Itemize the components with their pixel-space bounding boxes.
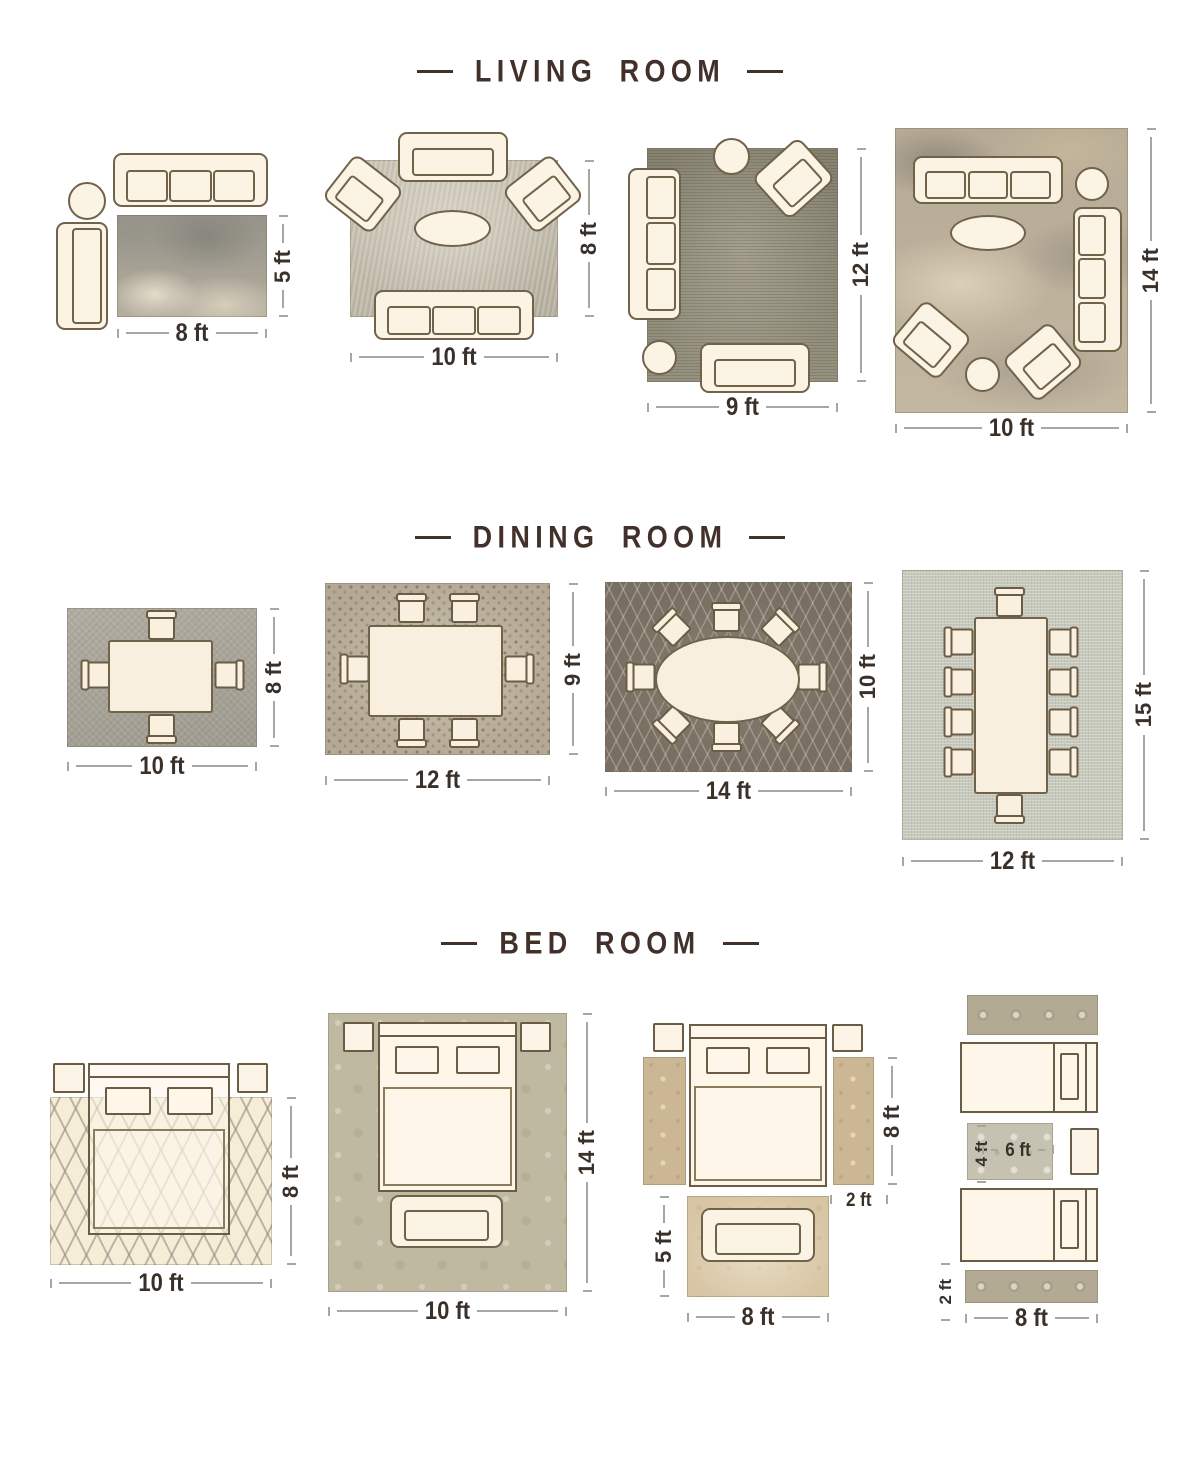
- sofa: [1073, 207, 1122, 352]
- dimension-label: 9 ft: [726, 394, 759, 419]
- twin-bed: [960, 1188, 1098, 1262]
- title-rule: [415, 536, 451, 539]
- side-table: [965, 357, 1000, 392]
- runner-rug: [967, 995, 1098, 1035]
- living-layout-8x5: 5 ft 8 ft: [50, 140, 302, 352]
- runner-rug: [833, 1057, 874, 1185]
- cushion: [432, 306, 476, 335]
- height-dimension: 15 ft: [1133, 570, 1155, 840]
- height-dimension: 14 ft: [1140, 128, 1162, 413]
- pillow: [456, 1046, 501, 1074]
- bed: [378, 1022, 517, 1192]
- side-table: [642, 340, 677, 375]
- sofa: [113, 153, 268, 207]
- dimension-label: 10 ft: [431, 344, 476, 369]
- pillow: [167, 1087, 213, 1116]
- bedroom-layout-twin-beds: 4 ft 6 ft 2 ft 8 ft: [930, 985, 1186, 1337]
- title-rule: [441, 942, 477, 945]
- cushion: [477, 306, 521, 335]
- dining-chair: [948, 629, 974, 656]
- cushion: [646, 176, 676, 219]
- headboard: [90, 1065, 228, 1078]
- dining-chair: [996, 591, 1023, 617]
- dining-chair: [398, 718, 425, 744]
- dining-chair: [798, 664, 824, 691]
- section-title: DINING ROOM: [473, 519, 728, 556]
- dining-chair: [948, 749, 974, 776]
- headboard: [691, 1026, 825, 1039]
- cushion: [169, 170, 211, 202]
- sofa: [628, 168, 681, 320]
- headboard: [1085, 1044, 1096, 1111]
- dining-chair: [451, 718, 478, 744]
- cushion: [1078, 258, 1105, 299]
- dimension-label: 14 ft: [1140, 248, 1162, 293]
- height-dimension: 8 ft: [280, 1097, 302, 1265]
- bench: [390, 1195, 503, 1248]
- dining-chair: [996, 794, 1023, 820]
- height-dimension: 14 ft: [576, 1013, 598, 1292]
- dimension-label: 6 ft: [1005, 1140, 1031, 1160]
- chaise: [56, 222, 108, 330]
- runner-width-dimension: 2 ft: [830, 1191, 878, 1208]
- cushion: [126, 170, 168, 202]
- height-dimension: 8 ft: [578, 160, 600, 317]
- section-title: LIVING ROOM: [475, 53, 725, 90]
- mattress: [694, 1086, 821, 1181]
- dining-chair: [215, 662, 241, 689]
- cushion: [968, 171, 1009, 199]
- cushion: [646, 222, 676, 265]
- dining-table: [655, 636, 800, 723]
- width-dimension: 9 ft: [647, 396, 838, 418]
- dining-layout-10x8: 8 ft 10 ft: [55, 585, 305, 785]
- height-dimension: 10 ft: [857, 582, 879, 772]
- height-dimension: 5 ft: [272, 215, 294, 317]
- dimension-label: 12 ft: [415, 767, 460, 792]
- dining-chair: [1049, 709, 1075, 736]
- height-dimension: 12 ft: [850, 148, 872, 382]
- dimension-label: 12 ft: [850, 242, 872, 287]
- title-rule: [747, 70, 783, 73]
- cushion: [646, 268, 676, 311]
- width-dimension: 10 ft: [350, 346, 558, 368]
- rug-size-guide: LIVING ROOM 5 ft 8 ft: [0, 0, 1200, 1467]
- dining-layout-12x15: 15 ft 12 ft: [895, 562, 1185, 880]
- height-dimension: 9 ft: [562, 583, 584, 755]
- dimension-label: 14 ft: [706, 778, 751, 803]
- dining-chair: [948, 669, 974, 696]
- dining-chair: [948, 709, 974, 736]
- dimension-label: 8 ft: [578, 222, 600, 255]
- runner-height-dimension: 8 ft: [881, 1057, 903, 1185]
- twin-bed: [960, 1042, 1098, 1113]
- pillow: [1060, 1053, 1079, 1100]
- mattress: [383, 1087, 511, 1186]
- cushion: [714, 359, 797, 388]
- height-dimension: 5 ft: [653, 1196, 675, 1297]
- dimension-label: 14 ft: [576, 1130, 598, 1175]
- area-rug: [117, 215, 267, 317]
- nightstand: [343, 1022, 374, 1052]
- dimension-label: 8 ft: [263, 661, 285, 694]
- bed: [689, 1024, 827, 1187]
- dimension-label: 8 ft: [1015, 1305, 1048, 1330]
- dining-table: [974, 617, 1048, 794]
- nightstand: [1070, 1128, 1099, 1175]
- cushion: [715, 1223, 801, 1255]
- sofa: [913, 156, 1063, 204]
- dining-table: [108, 640, 213, 713]
- cushion: [412, 148, 495, 177]
- width-dimension: 10 ft: [895, 417, 1128, 439]
- width-dimension: 8 ft: [117, 322, 267, 344]
- dimension-label: 8 ft: [280, 1165, 302, 1198]
- cushion: [404, 1210, 489, 1241]
- runner-length-dimension: 8 ft: [965, 1307, 1098, 1329]
- bed-divider: [1053, 1044, 1055, 1111]
- dimension-label: 2 ft: [937, 1279, 954, 1305]
- nightstand: [653, 1023, 684, 1052]
- height-dimension: 8 ft: [263, 608, 285, 747]
- title-rule: [417, 70, 453, 73]
- cushion: [333, 173, 386, 224]
- dimension-label: 9 ft: [562, 653, 584, 686]
- bedroom-layout-10x14: 14 ft 10 ft: [328, 1005, 604, 1335]
- pillow: [766, 1047, 810, 1074]
- dining-chair: [1049, 629, 1075, 656]
- pillow: [395, 1046, 440, 1074]
- dining-layout-14x10: 10 ft 14 ft: [595, 572, 883, 800]
- bed: [88, 1063, 230, 1235]
- dining-chair: [148, 714, 175, 740]
- accent-width-dimension: 6 ft: [982, 1141, 1054, 1158]
- nightstand: [237, 1063, 268, 1093]
- cushion: [213, 170, 255, 202]
- cushion: [520, 173, 573, 224]
- cushion: [1078, 215, 1105, 256]
- dining-chair: [630, 664, 656, 691]
- cushion: [72, 228, 102, 324]
- width-dimension: 8 ft: [687, 1306, 829, 1328]
- dining-chair: [1049, 749, 1075, 776]
- dimension-label: 5 ft: [272, 250, 294, 283]
- dimension-label: 8 ft: [176, 320, 209, 345]
- nightstand: [832, 1024, 863, 1052]
- dining-chair: [85, 662, 111, 689]
- loveseat: [701, 1208, 815, 1262]
- headboard: [380, 1024, 515, 1037]
- loveseat: [700, 343, 810, 393]
- pillow: [706, 1047, 750, 1074]
- dimension-label: 10 ft: [138, 1270, 183, 1295]
- pillow: [1060, 1200, 1079, 1249]
- dining-table: [368, 625, 503, 717]
- dimension-label: 12 ft: [990, 848, 1035, 873]
- dimension-label: 10 ft: [139, 753, 184, 778]
- width-dimension: 14 ft: [605, 780, 852, 802]
- sofa: [374, 290, 534, 340]
- dimension-label: 5 ft: [653, 1230, 675, 1263]
- bedroom-layout-10x8: 8 ft 10 ft: [40, 1050, 306, 1300]
- nightstand: [520, 1022, 551, 1052]
- dining-chair: [398, 597, 425, 623]
- dining-chair: [148, 614, 175, 640]
- section-title: BED ROOM: [499, 925, 700, 962]
- width-dimension: 10 ft: [50, 1272, 272, 1294]
- dimension-label: 10 ft: [989, 415, 1034, 440]
- dimension-label: 8 ft: [742, 1304, 775, 1329]
- dining-chair: [505, 656, 531, 683]
- cushion: [925, 171, 966, 199]
- pillow: [105, 1087, 151, 1116]
- headboard: [1085, 1190, 1096, 1260]
- nightstand: [53, 1063, 85, 1093]
- coffee-table: [414, 210, 491, 247]
- side-table: [713, 138, 750, 175]
- living-layout-10x8: 8 ft 10 ft: [330, 118, 606, 370]
- runner-rug: [643, 1057, 686, 1185]
- dining-chair: [713, 606, 740, 632]
- section-header-dining-room: DINING ROOM: [0, 522, 1200, 553]
- section-header-bed-room: BED ROOM: [0, 928, 1200, 959]
- dining-chair: [344, 656, 370, 683]
- living-layout-10x14: 14 ft 10 ft: [888, 112, 1184, 448]
- section-header-living-room: LIVING ROOM: [0, 56, 1200, 87]
- bedroom-layout-runners: 8 ft 2 ft 5 ft 8 ft: [635, 1015, 911, 1333]
- mattress: [93, 1129, 224, 1229]
- dining-layout-12x9: 9 ft 12 ft: [315, 575, 587, 795]
- cushion: [387, 306, 431, 335]
- coffee-table: [950, 215, 1026, 251]
- runner-width-dimension: 2 ft: [934, 1263, 956, 1309]
- dimension-label: 10 ft: [857, 654, 879, 699]
- width-dimension: 10 ft: [328, 1300, 567, 1322]
- dining-chair: [713, 722, 740, 748]
- width-dimension: 10 ft: [67, 755, 257, 777]
- dining-chair: [1049, 669, 1075, 696]
- cushion: [1010, 171, 1051, 199]
- cushion: [1078, 302, 1105, 343]
- side-table: [68, 182, 106, 220]
- width-dimension: 12 ft: [902, 850, 1123, 872]
- dimension-label: 2 ft: [846, 1190, 872, 1210]
- dimension-label: 10 ft: [425, 1298, 470, 1323]
- width-dimension: 12 ft: [325, 769, 550, 791]
- bed-divider: [1053, 1190, 1055, 1260]
- runner-rug: [965, 1270, 1098, 1303]
- dimension-label: 15 ft: [1133, 682, 1155, 727]
- side-table: [1075, 167, 1109, 201]
- title-rule: [749, 536, 785, 539]
- loveseat: [398, 132, 508, 182]
- title-rule: [723, 942, 759, 945]
- living-layout-9x12: 12 ft 9 ft: [620, 128, 882, 426]
- dimension-label: 8 ft: [881, 1105, 903, 1138]
- dining-chair: [451, 597, 478, 623]
